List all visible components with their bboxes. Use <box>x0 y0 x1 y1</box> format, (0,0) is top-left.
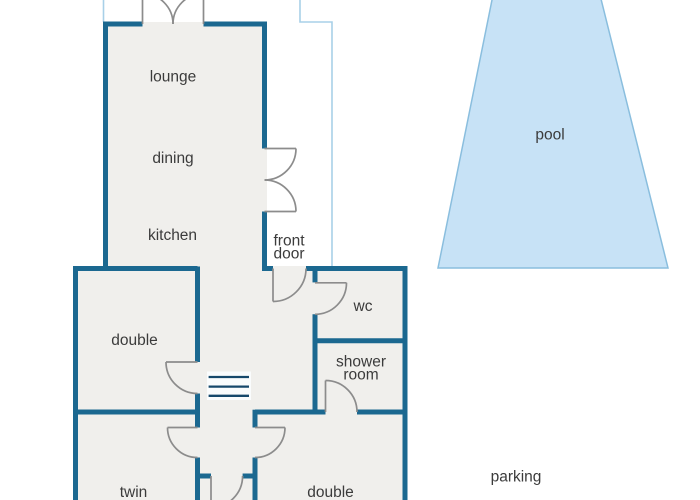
svg-text:twin: twin <box>120 484 148 500</box>
svg-text:kitchen: kitchen <box>148 227 197 244</box>
svg-text:room: room <box>343 367 378 384</box>
svg-text:lounge: lounge <box>150 69 197 86</box>
svg-text:wc: wc <box>353 298 373 315</box>
svg-text:parking: parking <box>491 469 542 486</box>
svg-text:double: double <box>111 332 158 349</box>
svg-text:dining: dining <box>152 150 193 167</box>
svg-text:double: double <box>307 484 354 500</box>
svg-text:door: door <box>273 246 304 263</box>
svg-text:pool: pool <box>535 127 564 144</box>
